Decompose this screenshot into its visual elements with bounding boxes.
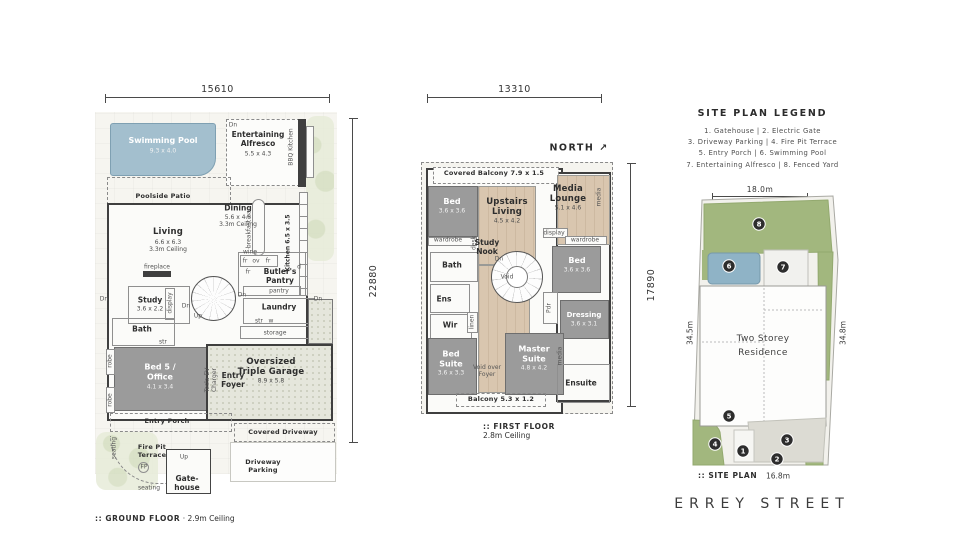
site-plan-caption-title: :: SITE PLAN — [698, 471, 757, 480]
site-plan-labels: 34.5m34.8m16.8mTwo Storey Residence — [0, 0, 980, 551]
site-plan-caption: :: SITE PLAN — [698, 471, 757, 480]
label-16-8m: 16.8m — [766, 472, 790, 481]
label-34-8m: 34.8m — [839, 321, 848, 345]
label-two-storey-residence: Two Storey Residence — [737, 333, 790, 361]
floorplan-canvas: 15610 22880 — [0, 0, 980, 551]
street-name: ERREY STREET — [648, 496, 876, 512]
label-34-5m: 34.5m — [686, 321, 695, 345]
